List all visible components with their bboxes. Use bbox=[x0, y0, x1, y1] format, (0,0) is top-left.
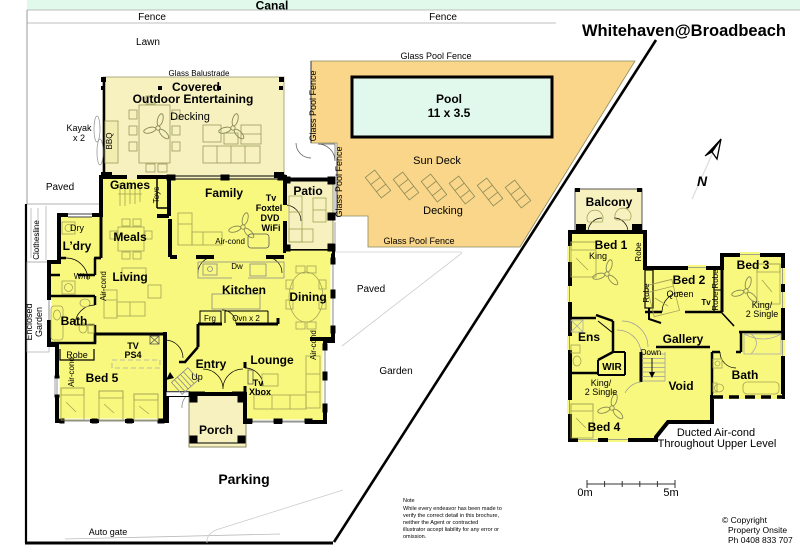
svg-text:WIR: WIR bbox=[602, 362, 622, 373]
svg-text:2 Single: 2 Single bbox=[746, 309, 779, 319]
svg-text:Pool: Pool bbox=[436, 92, 462, 106]
svg-text:Kayak: Kayak bbox=[66, 123, 92, 133]
svg-text:Glass Pool Fence: Glass Pool Fence bbox=[400, 51, 471, 61]
svg-text:Garden: Garden bbox=[34, 307, 44, 337]
svg-text:Tv: Tv bbox=[701, 298, 711, 307]
svg-text:Ens: Ens bbox=[578, 330, 600, 344]
svg-text:Clothesline: Clothesline bbox=[32, 220, 41, 260]
svg-text:Queen: Queen bbox=[666, 289, 693, 299]
svg-text:Fence: Fence bbox=[138, 12, 166, 23]
svg-text:Air-cond: Air-cond bbox=[99, 271, 108, 301]
svg-text:Robe: Robe bbox=[634, 242, 643, 262]
svg-text:WiFi: WiFi bbox=[262, 223, 281, 233]
svg-text:Bath: Bath bbox=[61, 314, 88, 328]
svg-text:Glass Pool Fence: Glass Pool Fence bbox=[334, 146, 344, 217]
svg-text:Lounge: Lounge bbox=[250, 353, 294, 367]
svg-text:Glass Pool Fence: Glass Pool Fence bbox=[308, 70, 318, 141]
svg-text:Ph 0408 833 707: Ph 0408 833 707 bbox=[728, 535, 793, 545]
svg-text:Patio: Patio bbox=[293, 184, 322, 198]
svg-text:Canal: Canal bbox=[256, 0, 289, 13]
svg-text:Note: Note bbox=[403, 498, 415, 504]
svg-text:Kitchen: Kitchen bbox=[222, 283, 266, 297]
svg-text:Lawn: Lawn bbox=[136, 37, 160, 48]
svg-text:Frg: Frg bbox=[204, 314, 216, 323]
svg-text:Throughout Upper Level: Throughout Upper Level bbox=[658, 438, 777, 450]
svg-text:Dw: Dw bbox=[231, 262, 243, 271]
svg-text:DVD: DVD bbox=[260, 213, 280, 223]
svg-text:Robe: Robe bbox=[711, 269, 720, 289]
svg-text:Decking: Decking bbox=[423, 205, 463, 217]
svg-text:Enclosed: Enclosed bbox=[24, 303, 34, 340]
svg-text:W/m: W/m bbox=[74, 272, 91, 281]
svg-text:Air-cond: Air-cond bbox=[67, 357, 76, 387]
svg-text:L’dry: L’dry bbox=[63, 239, 92, 253]
svg-text:illustrator accept liability f: illustrator accept liability for any err… bbox=[403, 527, 499, 533]
svg-text:Void: Void bbox=[668, 379, 693, 393]
svg-text:Bed 5: Bed 5 bbox=[86, 371, 119, 385]
svg-text:0m: 0m bbox=[577, 487, 592, 499]
svg-text:Outdoor Entertaining: Outdoor Entertaining bbox=[133, 92, 254, 106]
svg-text:Xbox: Xbox bbox=[249, 387, 271, 397]
svg-text:Tv: Tv bbox=[266, 193, 277, 203]
svg-text:Air-cond: Air-cond bbox=[309, 330, 318, 360]
svg-text:Living: Living bbox=[112, 270, 147, 284]
svg-text:Auto gate: Auto gate bbox=[89, 527, 128, 537]
svg-text:Air-cond: Air-cond bbox=[215, 237, 245, 246]
svg-text:Whitehaven@Broadbeach: Whitehaven@Broadbeach bbox=[582, 22, 786, 40]
svg-text:Robe: Robe bbox=[711, 291, 720, 311]
svg-text:Dry: Dry bbox=[70, 223, 84, 233]
svg-text:x 2: x 2 bbox=[73, 133, 85, 143]
svg-text:Glass Pool Fence: Glass Pool Fence bbox=[383, 236, 454, 246]
svg-text:Robe: Robe bbox=[642, 283, 651, 303]
svg-text:Bath: Bath bbox=[732, 368, 759, 382]
svg-text:Games: Games bbox=[110, 178, 150, 192]
svg-text:© Copyright: © Copyright bbox=[722, 515, 768, 525]
svg-text:While every endeavor has been: While every endeavor has been made to bbox=[403, 506, 502, 512]
svg-text:Paved: Paved bbox=[357, 284, 385, 295]
svg-text:Bed 1: Bed 1 bbox=[595, 238, 628, 252]
svg-text:omission.: omission. bbox=[403, 534, 427, 540]
svg-text:5m: 5m bbox=[663, 487, 678, 499]
svg-text:Dining: Dining bbox=[289, 290, 326, 304]
svg-text:Bed 4: Bed 4 bbox=[588, 420, 621, 434]
svg-text:Decking: Decking bbox=[170, 111, 210, 123]
svg-text:Meals: Meals bbox=[113, 230, 147, 244]
svg-text:Up: Up bbox=[191, 372, 203, 382]
svg-text:Parking: Parking bbox=[218, 471, 269, 487]
svg-text:Bed 2: Bed 2 bbox=[673, 273, 706, 287]
svg-text:Ovn x 2: Ovn x 2 bbox=[232, 314, 260, 323]
svg-text:Family: Family bbox=[205, 186, 243, 200]
svg-text:Porch: Porch bbox=[199, 423, 233, 437]
svg-text:Sun Deck: Sun Deck bbox=[413, 155, 461, 167]
svg-text:Foxtel: Foxtel bbox=[256, 203, 283, 213]
svg-text:Toys: Toys bbox=[152, 187, 161, 203]
svg-text:BBQ: BBQ bbox=[105, 133, 114, 150]
svg-text:Bed 3: Bed 3 bbox=[737, 258, 770, 272]
svg-text:2 Single: 2 Single bbox=[585, 387, 618, 397]
svg-text:verify the correct detail in t: verify the correct detail in this brochu… bbox=[403, 513, 499, 519]
svg-text:Paved: Paved bbox=[46, 182, 74, 193]
svg-text:Gallery: Gallery bbox=[663, 332, 704, 346]
svg-text:11 x 3.5: 11 x 3.5 bbox=[428, 106, 471, 120]
svg-text:Down: Down bbox=[641, 348, 661, 357]
svg-text:neither the Agent or contracte: neither the Agent or contracted bbox=[403, 520, 478, 526]
svg-text:Garden: Garden bbox=[379, 366, 412, 377]
svg-text:Fence: Fence bbox=[429, 12, 457, 23]
svg-text:Property Onsite: Property Onsite bbox=[728, 525, 787, 535]
svg-text:King: King bbox=[589, 251, 607, 261]
svg-text:Glass Balustrade: Glass Balustrade bbox=[169, 69, 230, 78]
svg-text:Balcony: Balcony bbox=[586, 195, 633, 209]
svg-text:Entry: Entry bbox=[196, 357, 227, 371]
svg-text:N: N bbox=[697, 173, 708, 189]
svg-text:PS4: PS4 bbox=[124, 350, 141, 360]
